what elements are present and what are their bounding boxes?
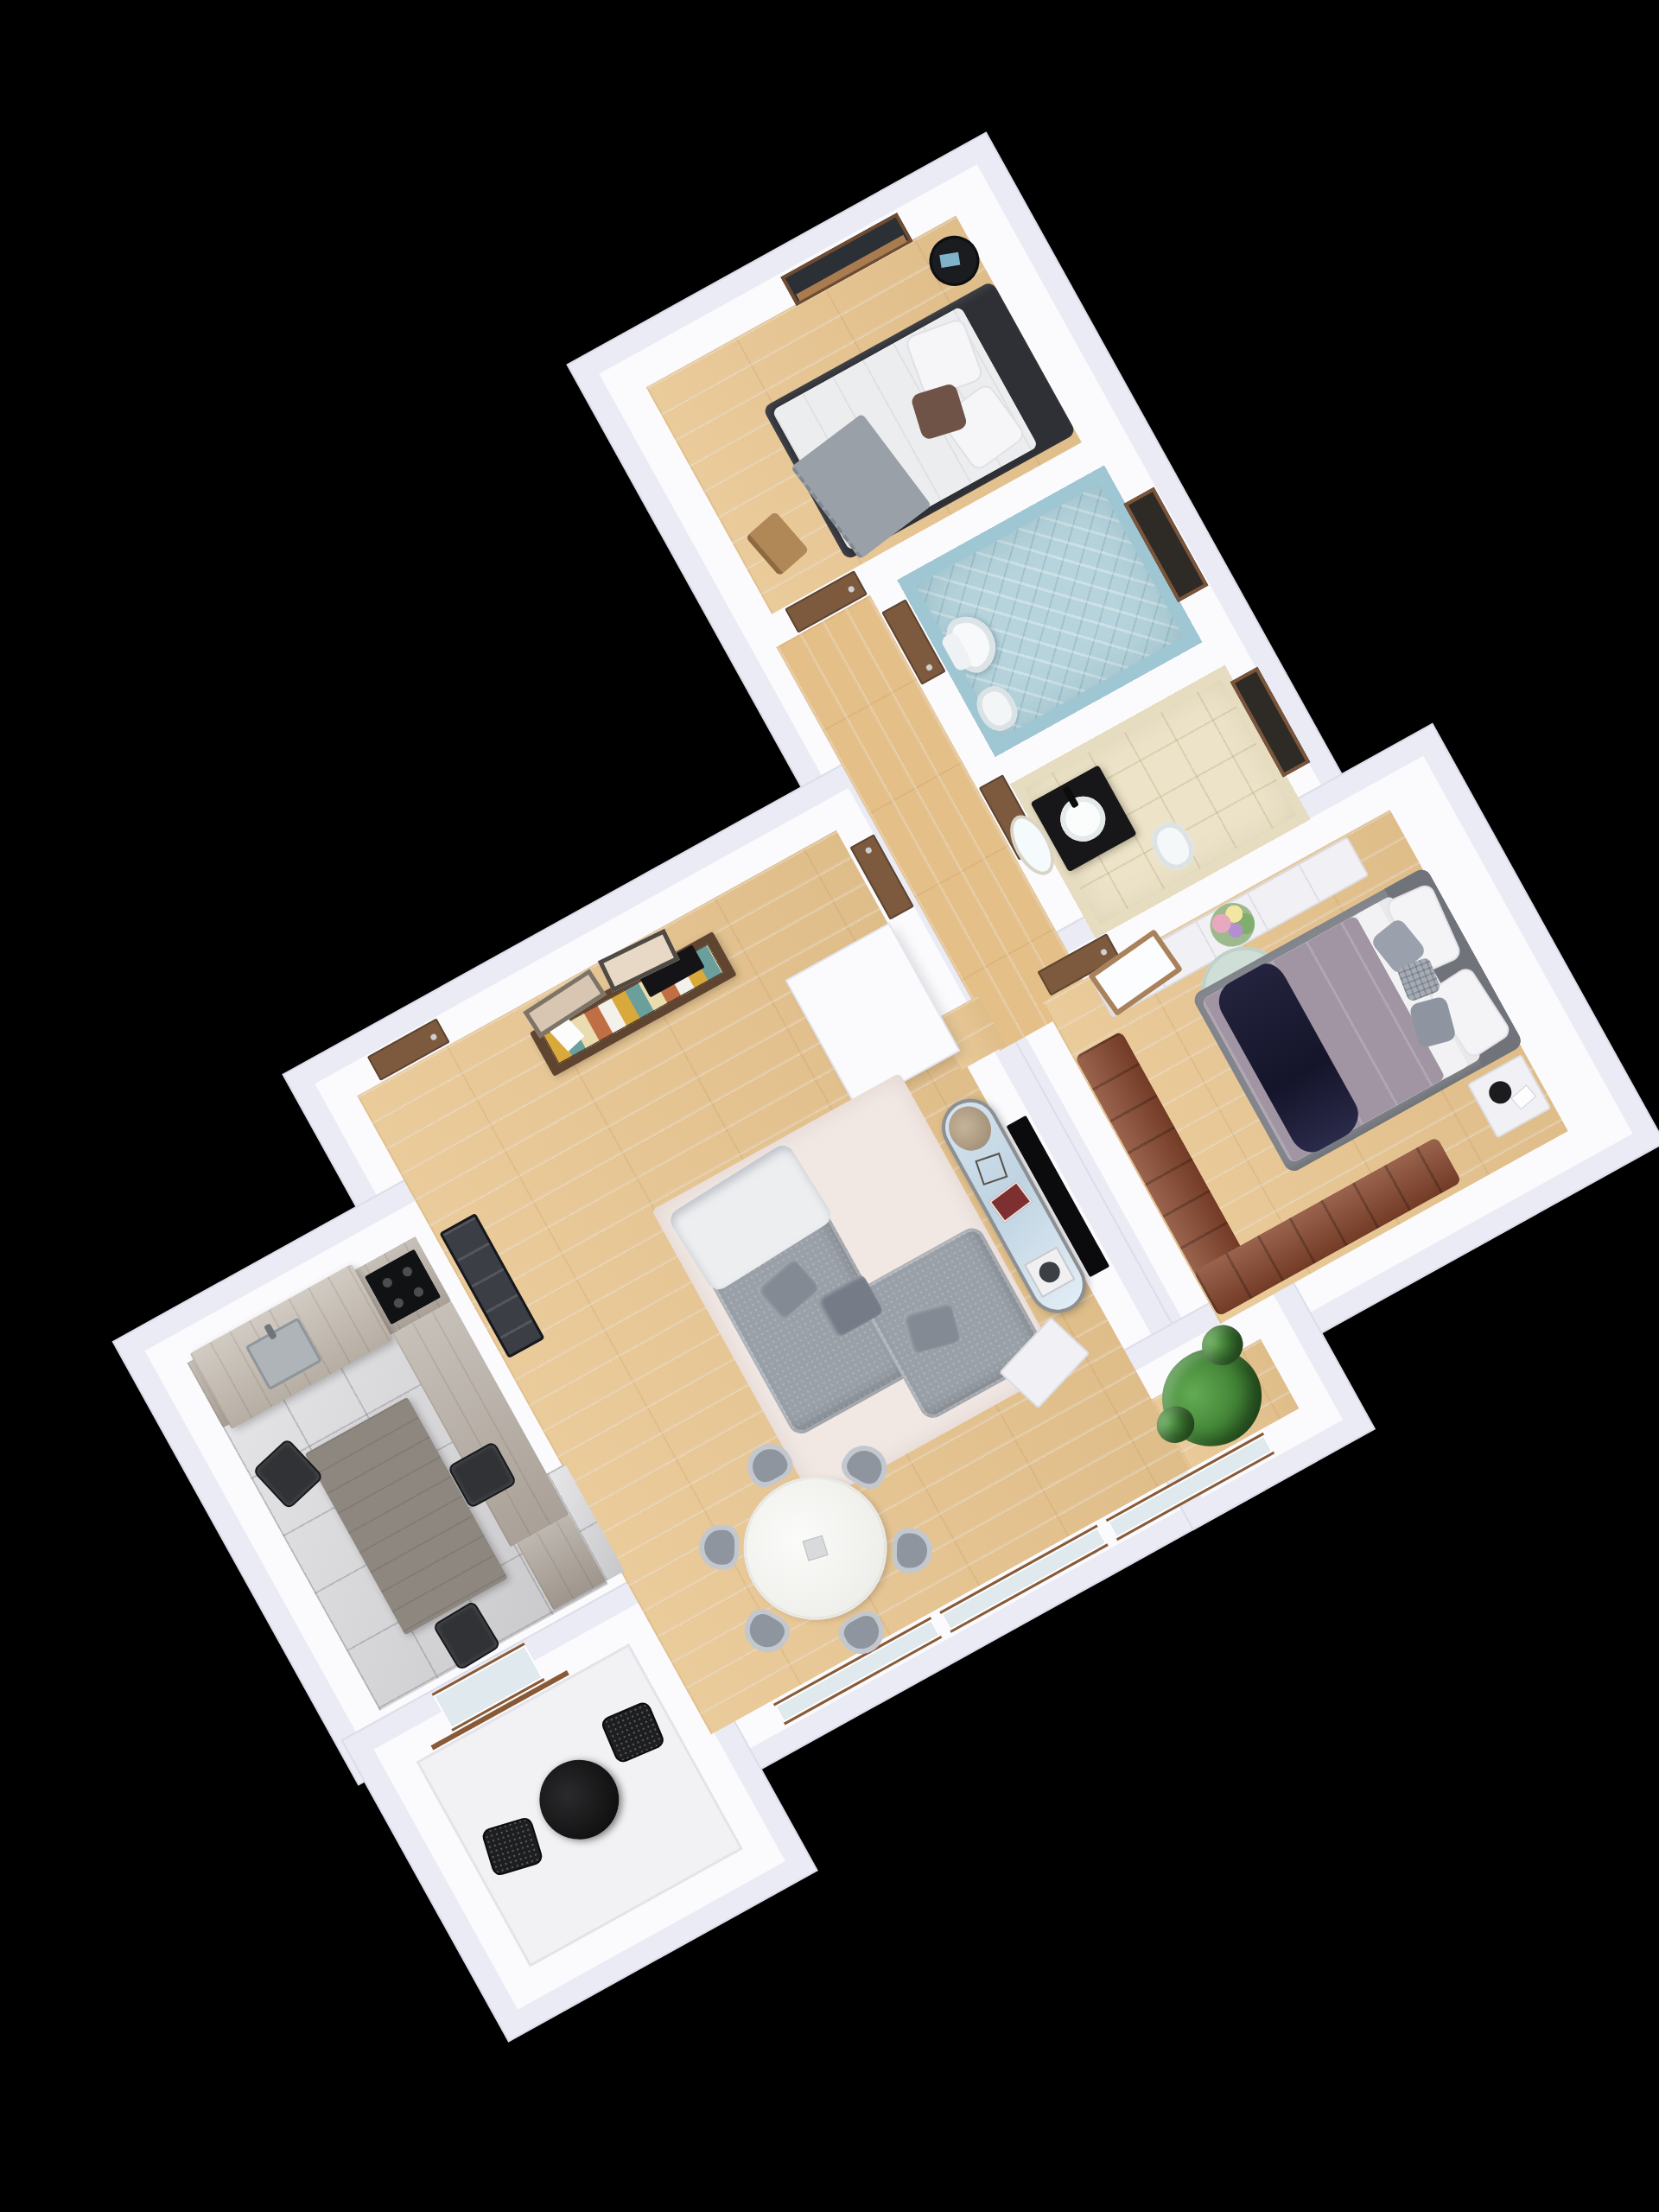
dining-chair [699, 1524, 740, 1570]
floor-plan-scene [0, 0, 1659, 2212]
